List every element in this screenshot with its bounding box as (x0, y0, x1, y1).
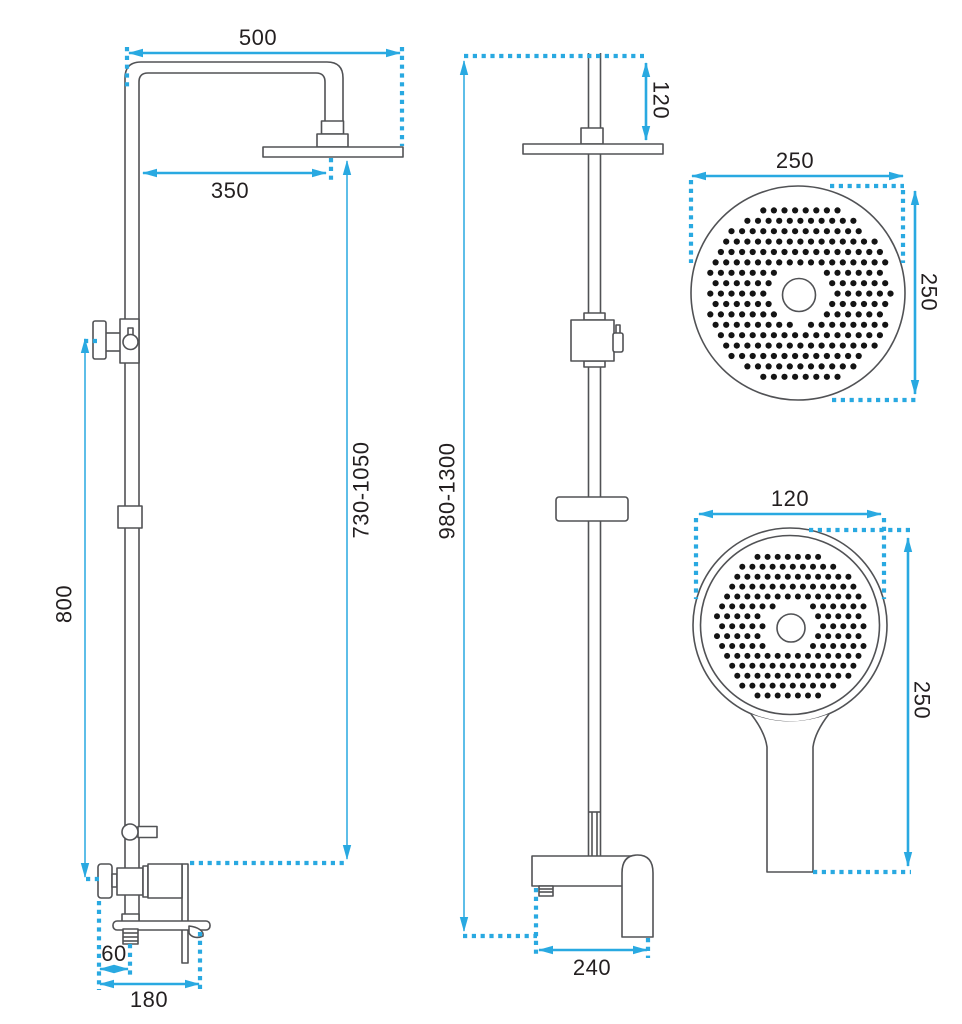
nozzle-dot (749, 584, 755, 590)
nozzle-dot (765, 554, 771, 560)
nozzle-dot (795, 554, 801, 560)
nozzle-dot (749, 603, 755, 609)
dimension-label: 980-1300 (435, 443, 460, 540)
nozzle-dot (781, 353, 787, 359)
nozzle-dot (840, 603, 846, 609)
nozzle-dot (765, 673, 771, 679)
nozzle-dot (771, 374, 777, 380)
nozzle-dot (825, 673, 831, 679)
nozzle-dot (728, 228, 734, 234)
nozzle-dot (792, 374, 798, 380)
nozzle-dot (780, 683, 786, 689)
nozzle-dot (850, 218, 856, 224)
nozzle-dot (718, 332, 724, 338)
nozzle-dot (800, 564, 806, 570)
nozzle-dot (739, 663, 745, 669)
nozzle-dot (723, 301, 729, 307)
nozzle-dot (850, 363, 856, 369)
nozzle-dot (723, 239, 729, 245)
nozzle-dot (770, 564, 776, 570)
nozzle-dot (785, 653, 791, 659)
nozzle-dot (866, 332, 872, 338)
nozzle-dot (850, 643, 856, 649)
nozzle-dot (861, 280, 867, 286)
view-handshower-face: 120 250 (693, 486, 935, 872)
nozzle-dot (771, 249, 777, 255)
nozzle-dot (856, 270, 862, 276)
nozzle-dot (830, 623, 836, 629)
nozzle-dot (856, 332, 862, 338)
nozzle-dot (850, 343, 856, 349)
nozzle-dot (797, 239, 803, 245)
nozzle-dot (787, 259, 793, 265)
nozzle-dot (813, 332, 819, 338)
nozzle-dot (776, 343, 782, 349)
nozzle-dot (856, 291, 862, 297)
nozzle-dot (808, 363, 814, 369)
nozzle-dot (766, 322, 772, 328)
nozzle-dot (810, 643, 816, 649)
nozzle-dot (820, 603, 826, 609)
nozzle-dot (750, 353, 756, 359)
nozzle-dot (723, 322, 729, 328)
mixer-handle (622, 855, 653, 937)
dimension-column-adjust-range: 730-1050 (190, 161, 374, 863)
mixer-wall-plate (98, 864, 112, 898)
nozzle-dot (835, 653, 841, 659)
nozzle-dot (829, 322, 835, 328)
nozzle-dot (744, 259, 750, 265)
nozzle-dot (834, 291, 840, 297)
nozzle-dot (834, 311, 840, 317)
dimension-head-drop: 120 (646, 63, 674, 140)
nozzle-dot (724, 653, 730, 659)
nozzle-dot (813, 207, 819, 213)
nozzle-dot (835, 633, 841, 639)
threaded-nipple (539, 886, 553, 896)
nozzle-dot (850, 663, 856, 669)
nozzle-dot (861, 322, 867, 328)
nozzle-dot (840, 584, 846, 590)
nozzle-dot (877, 270, 883, 276)
nozzle-dot (744, 594, 750, 600)
nozzle-dot (739, 270, 745, 276)
rain-head-edge (263, 147, 403, 157)
nozzle-dot (785, 693, 791, 699)
nozzle-dot (882, 322, 888, 328)
nozzle-dot (835, 673, 841, 679)
nozzle-dot (739, 228, 745, 234)
dimension-label: 120 (649, 81, 674, 119)
slider-collar-top (584, 313, 605, 320)
nozzle-dot (856, 311, 862, 317)
nozzle-dot (734, 594, 740, 600)
nozzle-dot (824, 311, 830, 317)
nozzle-dot (834, 228, 840, 234)
nozzle-dot (781, 332, 787, 338)
nozzle-dot (795, 594, 801, 600)
view-side: 980-1300 120 240 (435, 53, 674, 980)
nozzle-dot (734, 322, 740, 328)
dimension-label: 60 (101, 941, 126, 966)
shower-set-dimension-drawing: 500 350 730-1050 800 60 180 (0, 0, 962, 1024)
nozzle-dot (795, 574, 801, 580)
nozzle-dot (713, 259, 719, 265)
nozzle-dot (824, 207, 830, 213)
nozzle-dot (781, 374, 787, 380)
nozzle-dot (744, 343, 750, 349)
nozzle-dot (713, 280, 719, 286)
nozzle-dot (829, 301, 835, 307)
nozzle-dot (739, 683, 745, 689)
nozzle-dot (840, 301, 846, 307)
nozzle-dot (723, 343, 729, 349)
nozzle-dot (755, 280, 761, 286)
nozzle-dot (749, 564, 755, 570)
nozzle-dot (810, 584, 816, 590)
nozzle-dot (760, 270, 766, 276)
nozzle-dot (856, 653, 862, 659)
nozzle-dot (803, 374, 809, 380)
dimension-label: 800 (52, 585, 77, 623)
nozzle-dot (755, 218, 761, 224)
nozzle-dot (877, 332, 883, 338)
head-connector-lower (317, 134, 348, 147)
dimension-total-height-range: 980-1300 (435, 56, 645, 936)
nozzle-dot (845, 653, 851, 659)
nozzle-dot (834, 249, 840, 255)
nozzle-dot (830, 603, 836, 609)
mixer-body (117, 868, 143, 895)
nozzle-dot (829, 343, 835, 349)
nozzle-dot (790, 564, 796, 570)
dimension-label: 500 (239, 25, 277, 50)
nozzle-dot (744, 301, 750, 307)
nozzle-dot (813, 374, 819, 380)
nozzle-dot (840, 218, 846, 224)
nozzle-dot (729, 643, 735, 649)
nozzle-dot (787, 363, 793, 369)
nozzle-dot (815, 554, 821, 560)
nozzle-dot (829, 363, 835, 369)
nozzle-dot (815, 633, 821, 639)
view-front: 500 350 730-1050 800 60 180 (52, 25, 404, 1012)
nozzle-dot (755, 693, 761, 699)
nozzle-dot (820, 623, 826, 629)
nozzle-dot (845, 594, 851, 600)
nozzle-dot (760, 643, 766, 649)
nozzle-dot (840, 259, 846, 265)
nozzle-dot (755, 613, 761, 619)
nozzle-dot (861, 343, 867, 349)
nozzle-dot (766, 239, 772, 245)
nozzle-dot (776, 218, 782, 224)
nozzle-dot (819, 322, 825, 328)
nozzle-dot (861, 603, 867, 609)
nozzle-dot (739, 353, 745, 359)
nozzle-dot (845, 574, 851, 580)
nozzle-dot (760, 228, 766, 234)
dimension-arm-reach: 500 (127, 25, 402, 146)
nozzle-dot (755, 633, 761, 639)
nozzle-dot (781, 249, 787, 255)
nozzle-dot (770, 584, 776, 590)
nozzle-dot (728, 249, 734, 255)
nozzle-dot (808, 343, 814, 349)
nozzle-dot (755, 343, 761, 349)
nozzle-dot (728, 270, 734, 276)
nozzle-dot (771, 332, 777, 338)
nozzle-dot (829, 239, 835, 245)
nozzle-dot (805, 594, 811, 600)
nozzle-dot (797, 218, 803, 224)
nozzle-dot (775, 693, 781, 699)
nozzle-dot (750, 228, 756, 234)
nozzle-dot (734, 653, 740, 659)
center-hole (783, 279, 816, 312)
nozzle-dot (845, 353, 851, 359)
nozzle-dot (760, 663, 766, 669)
nozzle-dot (872, 301, 878, 307)
mixer-side-plate (182, 864, 188, 963)
nozzle-dot (734, 343, 740, 349)
nozzle-dot (780, 564, 786, 570)
nozzle-dot (861, 239, 867, 245)
nozzle-dot (813, 353, 819, 359)
head-connector (581, 128, 603, 144)
nozzle-dot (830, 643, 836, 649)
nozzle-dot (718, 270, 724, 276)
nozzle-dot (820, 584, 826, 590)
nozzle-dot (729, 584, 735, 590)
nozzle-dot (872, 259, 878, 265)
nozzle-dot (787, 218, 793, 224)
nozzle-dot (866, 311, 872, 317)
nozzle-dot (744, 239, 750, 245)
nozzle-dot (803, 332, 809, 338)
nozzle-dot (739, 249, 745, 255)
nozzle-dot (750, 270, 756, 276)
handset-holder (571, 320, 614, 361)
nozzle-dot (840, 239, 846, 245)
nozzle-dot (810, 663, 816, 669)
nozzle-dot (760, 683, 766, 689)
nozzle-dot (728, 291, 734, 297)
nozzle-dot (734, 239, 740, 245)
nozzle-dot (803, 228, 809, 234)
nozzle-dot (808, 322, 814, 328)
nozzle-dot (749, 683, 755, 689)
dimension-label: 240 (573, 955, 611, 980)
nozzle-dot (882, 280, 888, 286)
nozzle-dot (850, 322, 856, 328)
nozzle-dot (845, 228, 851, 234)
nozzle-dot (877, 291, 883, 297)
nozzle-dot (776, 322, 782, 328)
nozzle-dot (760, 603, 766, 609)
nozzle-dot (707, 311, 713, 317)
nozzle-dot (795, 693, 801, 699)
nozzle-dot (766, 218, 772, 224)
nozzle-dot (744, 574, 750, 580)
nozzle-dot (714, 613, 720, 619)
nozzle-dot (760, 374, 766, 380)
nozzle-dot (829, 218, 835, 224)
nozzle-dot (824, 353, 830, 359)
nozzle-dot (825, 633, 831, 639)
nozzle-dot (766, 259, 772, 265)
nozzle-dot (800, 683, 806, 689)
nozzle-dot (770, 663, 776, 669)
nozzle-dot (776, 259, 782, 265)
nozzle-dot (728, 332, 734, 338)
nozzle-dot (805, 693, 811, 699)
diverter-knob (122, 824, 138, 840)
nozzle-dot (819, 218, 825, 224)
nozzle-dot (819, 239, 825, 245)
nozzle-dot (840, 643, 846, 649)
nozzle-dot (739, 332, 745, 338)
nozzle-dot (765, 594, 771, 600)
nozzle-dot (760, 564, 766, 570)
nozzle-dot (840, 322, 846, 328)
nozzle-dot (771, 353, 777, 359)
nozzle-dot (790, 663, 796, 669)
nozzle-dot (785, 554, 791, 560)
nozzle-dot (825, 653, 831, 659)
head-connector-upper (322, 121, 344, 134)
nozzle-dot (723, 280, 729, 286)
nozzle-dot (719, 643, 725, 649)
nozzle-dot (845, 633, 851, 639)
technical-drawing-page: 500 350 730-1050 800 60 180 (0, 0, 962, 1024)
nozzle-dot (755, 574, 761, 580)
nozzle-dot (840, 343, 846, 349)
nozzle-dot (744, 673, 750, 679)
nozzle-dot (792, 228, 798, 234)
thread-body (539, 886, 553, 896)
nozzle-dot (707, 270, 713, 276)
nozzle-dot (713, 322, 719, 328)
nozzle-dot (815, 613, 821, 619)
nozzle-dot (850, 239, 856, 245)
nozzle-dot (755, 554, 761, 560)
nozzle-dot (850, 301, 856, 307)
nozzle-dot (729, 623, 735, 629)
nozzle-dot (830, 663, 836, 669)
nozzle-dot (797, 343, 803, 349)
rain-head-edge (523, 144, 663, 154)
nozzle-dot (729, 603, 735, 609)
nozzle-dot (813, 228, 819, 234)
nozzle-dot (856, 633, 862, 639)
nozzle-dot (877, 249, 883, 255)
nozzle-dot (750, 249, 756, 255)
nozzle-dot (820, 564, 826, 570)
dimension-label: 250 (910, 681, 935, 719)
nozzle-dot (718, 311, 724, 317)
nozzle-dot (749, 643, 755, 649)
nozzle-dot (771, 228, 777, 234)
nozzle-dot (765, 693, 771, 699)
nozzle-dot (861, 259, 867, 265)
nozzle-dot (755, 653, 761, 659)
nozzle-dot (739, 623, 745, 629)
nozzle-dot (829, 259, 835, 265)
nozzle-dot (765, 574, 771, 580)
nozzle-dot (824, 332, 830, 338)
nozzle-dot (872, 322, 878, 328)
nozzle-dot (739, 311, 745, 317)
nozzle-dot (824, 374, 830, 380)
nozzle-dot (766, 343, 772, 349)
nozzle-dot (734, 301, 740, 307)
dimension-label: 250 (776, 148, 814, 173)
nozzle-dot (845, 332, 851, 338)
nozzle-dot (724, 594, 730, 600)
nozzle-dot (887, 291, 893, 297)
nozzle-dot (882, 259, 888, 265)
nozzle-dot (755, 363, 761, 369)
nozzle-dot (723, 259, 729, 265)
nozzle-dot (771, 311, 777, 317)
soap-dish (556, 497, 628, 521)
slider-collar-bottom (584, 361, 605, 367)
nozzle-dot (775, 673, 781, 679)
view-rainhead-face: 250 250 (691, 148, 942, 400)
dimension-label: 180 (130, 987, 168, 1012)
nozzle-dot (803, 249, 809, 255)
nozzle-dot (780, 584, 786, 590)
nozzle-dot (856, 353, 862, 359)
nozzle-dot (882, 301, 888, 307)
nozzle-dot (729, 663, 735, 669)
nozzle-dot (760, 353, 766, 359)
nozzle-dot (810, 683, 816, 689)
nozzle-dot (766, 301, 772, 307)
nozzle-dot (872, 343, 878, 349)
nozzle-dot (800, 663, 806, 669)
dimension-label: 250 (917, 273, 942, 311)
nozzle-dot (861, 301, 867, 307)
nozzle-dot (765, 653, 771, 659)
nozzle-dot (872, 239, 878, 245)
nozzle-dot (734, 613, 740, 619)
nozzle-dot (805, 554, 811, 560)
nozzle-dot (803, 207, 809, 213)
nozzle-dot (834, 374, 840, 380)
nozzle-dot (780, 663, 786, 669)
nozzle-dot (845, 291, 851, 297)
nozzle-dot (825, 613, 831, 619)
nozzle-dot (760, 584, 766, 590)
nozzle-dot (775, 574, 781, 580)
center-hole (777, 614, 805, 642)
nozzle-dot (819, 363, 825, 369)
nozzle-dot (820, 683, 826, 689)
nozzle-dot (785, 574, 791, 580)
nozzle-dot (776, 363, 782, 369)
nozzle-dot (810, 603, 816, 609)
nozzle-dot (850, 584, 856, 590)
nozzle-dot (850, 623, 856, 629)
mixer-cylinder (148, 864, 182, 898)
nozzle-dot (739, 564, 745, 570)
diverter-lever (138, 827, 157, 838)
dimension-head-offset: 350 (143, 158, 331, 203)
nozzle-dot (819, 343, 825, 349)
nozzle-dot (718, 291, 724, 297)
